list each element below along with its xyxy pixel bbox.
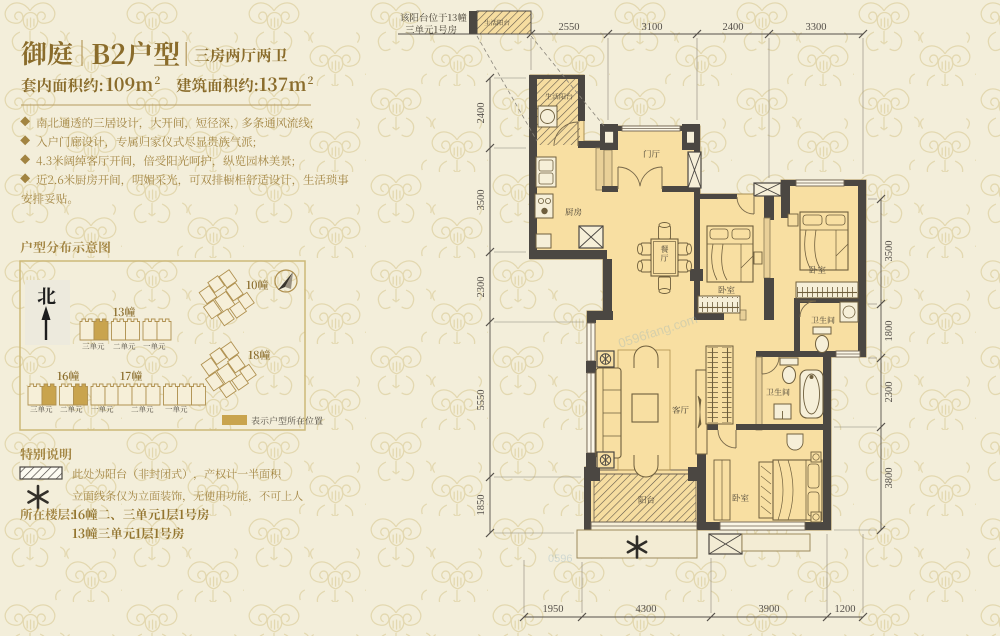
- svg-text:3900: 3900: [759, 604, 780, 615]
- svg-text:5550: 5550: [476, 390, 487, 411]
- svg-text:2300: 2300: [884, 382, 895, 403]
- svg-text:3100: 3100: [642, 22, 663, 33]
- svg-text:3500: 3500: [884, 241, 895, 262]
- svg-text:0596: 0596: [548, 553, 572, 565]
- svg-text:1850: 1850: [476, 495, 487, 516]
- svg-text:3300: 3300: [806, 22, 827, 33]
- svg-text:2300: 2300: [476, 277, 487, 298]
- svg-text:1950: 1950: [543, 604, 564, 615]
- svg-text:1800: 1800: [884, 321, 895, 342]
- svg-text:2400: 2400: [476, 103, 487, 124]
- svg-text:3800: 3800: [884, 468, 895, 489]
- svg-text:1200: 1200: [835, 604, 856, 615]
- svg-text:4300: 4300: [636, 604, 657, 615]
- svg-text:2400: 2400: [723, 22, 744, 33]
- svg-text:2550: 2550: [559, 22, 580, 33]
- svg-text:3500: 3500: [476, 190, 487, 211]
